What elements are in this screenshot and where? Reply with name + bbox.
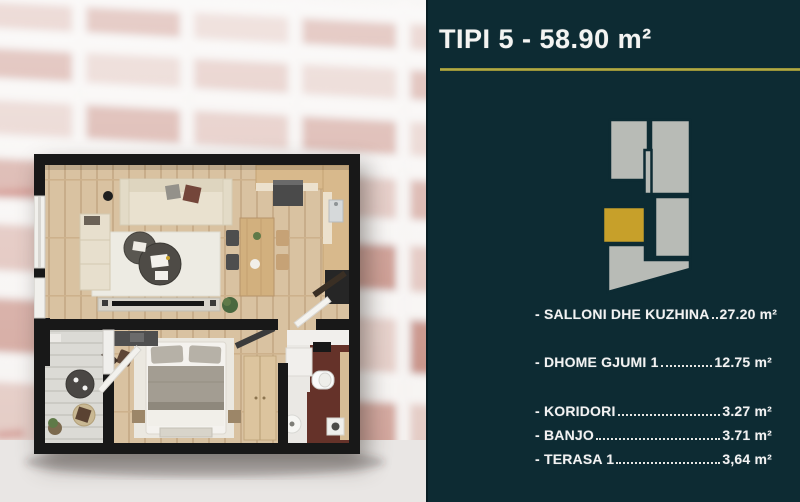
room-row: - SALLONI DHE KUZHINA 27.20 m² bbox=[535, 306, 772, 322]
room-area-value: 3,64 m² bbox=[722, 451, 772, 467]
room-area-value: 12.75 m² bbox=[714, 354, 772, 370]
room-row: - TERASA 1 3,64 m² bbox=[535, 451, 772, 467]
key-plan bbox=[598, 106, 702, 298]
room-row: - KORIDORI 3.27 m² bbox=[535, 403, 772, 419]
side-bench bbox=[80, 214, 110, 290]
dotted-leader bbox=[596, 438, 720, 440]
floor-lamp bbox=[103, 191, 113, 201]
room-area-list: - SALLONI DHE KUZHINA 27.20 m² - DHOME G… bbox=[535, 306, 772, 467]
tv-console bbox=[98, 298, 220, 311]
room-area-value: 3.71 m² bbox=[722, 427, 772, 443]
plant bbox=[222, 297, 238, 313]
floorplan-section bbox=[0, 0, 426, 502]
keyplan-highlighted-unit bbox=[603, 207, 645, 243]
room-area-value: 3.27 m² bbox=[722, 403, 772, 419]
dotted-leader bbox=[661, 365, 713, 367]
sofa bbox=[120, 179, 232, 225]
room-label: - KORIDORI bbox=[535, 403, 616, 419]
floor-plan bbox=[34, 152, 366, 458]
keyplan-unit bbox=[610, 120, 648, 180]
nightstand bbox=[228, 410, 241, 423]
terrace-table bbox=[66, 370, 94, 398]
dotted-leader bbox=[616, 462, 720, 464]
room-label: - BANJO bbox=[535, 427, 594, 443]
room-label: - SALLONI DHE KUZHINA bbox=[535, 306, 710, 322]
dotted-leader bbox=[712, 317, 718, 319]
room-area-value: 27.20 m² bbox=[720, 306, 778, 322]
room-row: - BANJO 3.71 m² bbox=[535, 427, 772, 443]
room-label: - DHOME GJUMI 1 bbox=[535, 354, 659, 370]
bed bbox=[146, 342, 226, 437]
gold-divider bbox=[440, 68, 800, 71]
nightstand bbox=[132, 410, 145, 423]
wardrobe bbox=[244, 356, 276, 440]
room-row: - DHOME GJUMI 1 12.75 m² bbox=[535, 354, 772, 370]
wall-shadow bbox=[45, 165, 349, 170]
keyplan-unit bbox=[655, 197, 690, 257]
room-label: - TERASA 1 bbox=[535, 451, 614, 467]
dotted-leader bbox=[618, 414, 721, 416]
slide: TIPI 5 - 58.90 m² - SALLONI DHE KUZHINA … bbox=[0, 0, 800, 502]
keyplan-unit bbox=[651, 120, 690, 194]
info-panel: TIPI 5 - 58.90 m² - SALLONI DHE KUZHINA … bbox=[426, 0, 800, 502]
page-title: TIPI 5 - 58.90 m² bbox=[439, 24, 652, 55]
keyplan-corridor bbox=[645, 150, 652, 194]
